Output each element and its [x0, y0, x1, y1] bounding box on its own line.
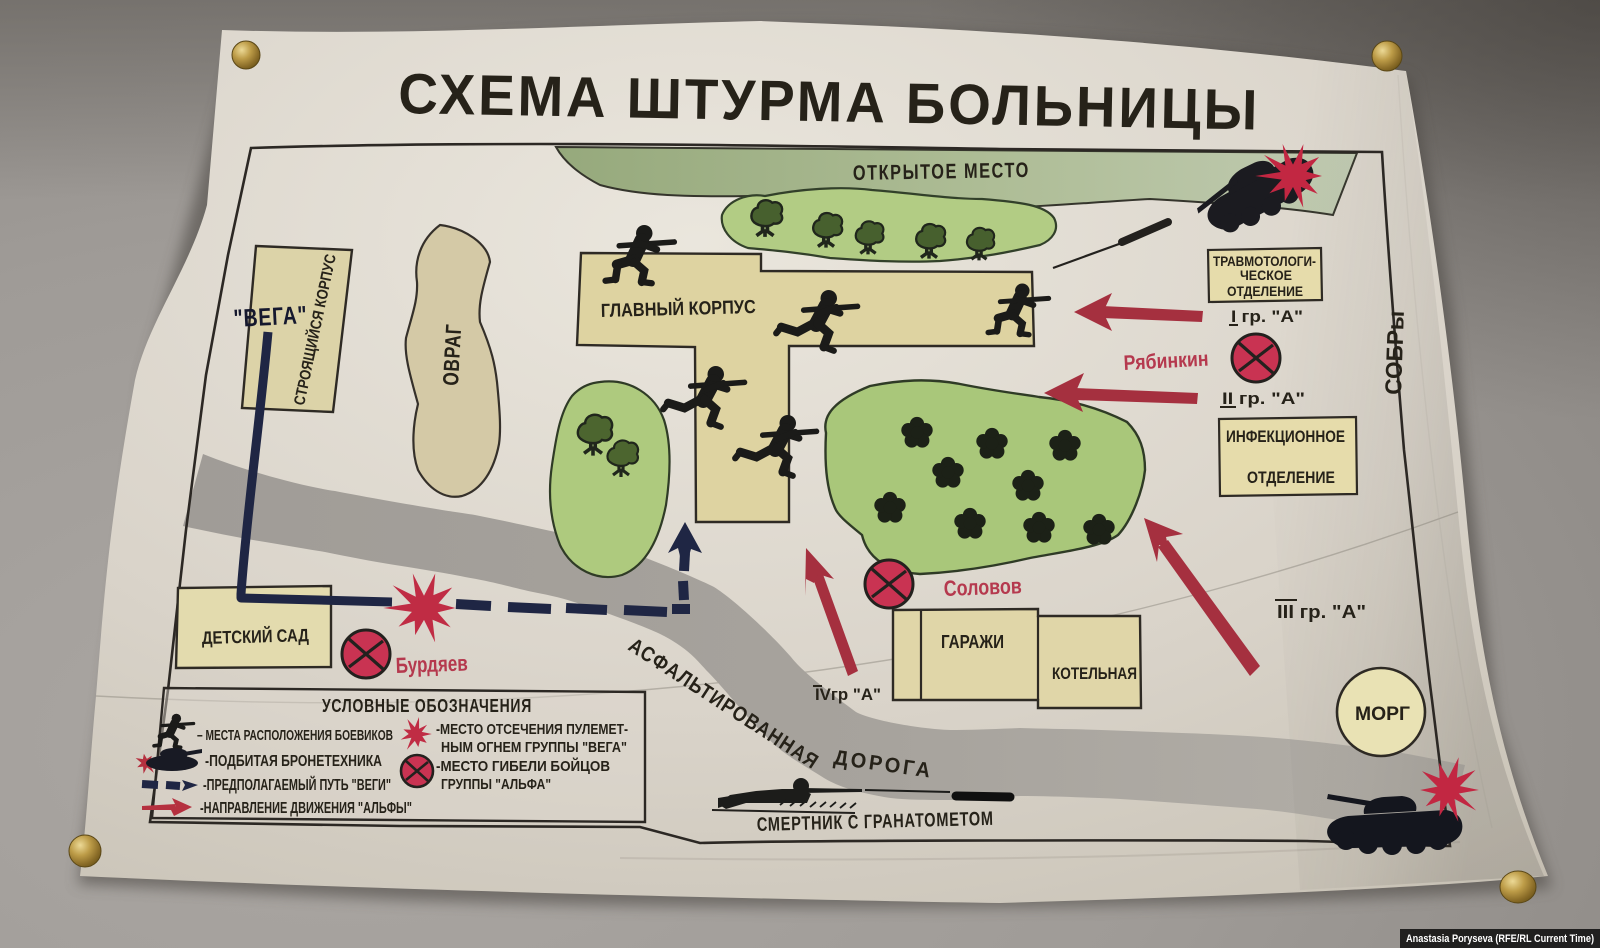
svg-text:-МЕСТО ГИБЕЛИ БОЙЦОВ: -МЕСТО ГИБЕЛИ БОЙЦОВ: [436, 757, 610, 775]
svg-text:ДЕТСКИЙ САД: ДЕТСКИЙ САД: [202, 624, 310, 648]
svg-text:-МЕСТО ОТСЕЧЕНИЯ ПУЛЕМЕТ-: -МЕСТО ОТСЕЧЕНИЯ ПУЛЕМЕТ-: [436, 721, 628, 738]
svg-text:СОБРы: СОБРы: [1380, 310, 1409, 395]
svg-text:IVгр "А": IVгр "А": [815, 685, 881, 704]
svg-text:ГРУППЫ "АЛЬФА": ГРУППЫ "АЛЬФА": [441, 776, 551, 793]
svg-text:– МЕСТА РАСПОЛОЖЕНИЯ БОЕВИКОВ: – МЕСТА РАСПОЛОЖЕНИЯ БОЕВИКОВ: [197, 728, 393, 744]
svg-text:ГАРАЖИ: ГАРАЖИ: [941, 632, 1004, 652]
svg-text:Anastasia Poryseva (RFE/RL Cur: Anastasia Poryseva (RFE/RL Current Time): [1406, 933, 1594, 945]
svg-text:УСЛОВНЫЕ ОБОЗНАЧЕНИЯ: УСЛОВНЫЕ ОБОЗНАЧЕНИЯ: [322, 695, 532, 716]
svg-text:I гр. "А": I гр. "А": [1231, 307, 1303, 326]
svg-text:ГЛАВНЫЙ КОРПУС: ГЛАВНЫЙ КОРПУС: [601, 296, 757, 322]
svg-text:ОТДЕЛЕНИЕ: ОТДЕЛЕНИЕ: [1227, 284, 1303, 299]
svg-text:III гр. "А": III гр. "А": [1277, 602, 1366, 622]
svg-text:ОТДЕЛЕНИЕ: ОТДЕЛЕНИЕ: [1247, 468, 1335, 487]
svg-text:ОТКРЫТОЕ МЕСТО: ОТКРЫТОЕ МЕСТО: [853, 159, 1030, 185]
svg-text:НЫМ ОГНЕМ ГРУППЫ "ВЕГА": НЫМ ОГНЕМ ГРУППЫ "ВЕГА": [441, 739, 627, 756]
svg-text:ТРАВМОТОЛОГИ-: ТРАВМОТОЛОГИ-: [1213, 254, 1316, 269]
svg-text:"ВЕГА": "ВЕГА": [233, 301, 308, 333]
svg-text:МОРГ: МОРГ: [1355, 704, 1410, 725]
svg-text:Бурдяев: Бурдяев: [395, 650, 468, 677]
svg-text:-ПОДБИТАЯ БРОНЕТЕХНИКА: -ПОДБИТАЯ БРОНЕТЕХНИКА: [205, 753, 382, 770]
svg-text:-ПРЕДПОЛАГАЕМЫЙ ПУТЬ "ВЕГИ": -ПРЕДПОЛАГАЕМЫЙ ПУТЬ "ВЕГИ": [203, 776, 391, 794]
svg-text:Соловов: Соловов: [943, 573, 1022, 601]
svg-text:-НАПРАВЛЕНИЕ ДВИЖЕНИЯ "АЛЬФЫ": -НАПРАВЛЕНИЕ ДВИЖЕНИЯ "АЛЬФЫ": [200, 800, 412, 817]
svg-text:Рябинкин: Рябинкин: [1123, 348, 1209, 375]
svg-text:II гр. "А": II гр. "А": [1222, 389, 1305, 408]
svg-text:ИНФЕКЦИОННОЕ: ИНФЕКЦИОННОЕ: [1226, 427, 1345, 446]
svg-text:КОТЕЛЬНАЯ: КОТЕЛЬНАЯ: [1052, 664, 1137, 683]
svg-text:ЧЕСКОЕ: ЧЕСКОЕ: [1240, 268, 1292, 283]
svg-text:ОВРАГ: ОВРАГ: [438, 323, 466, 386]
